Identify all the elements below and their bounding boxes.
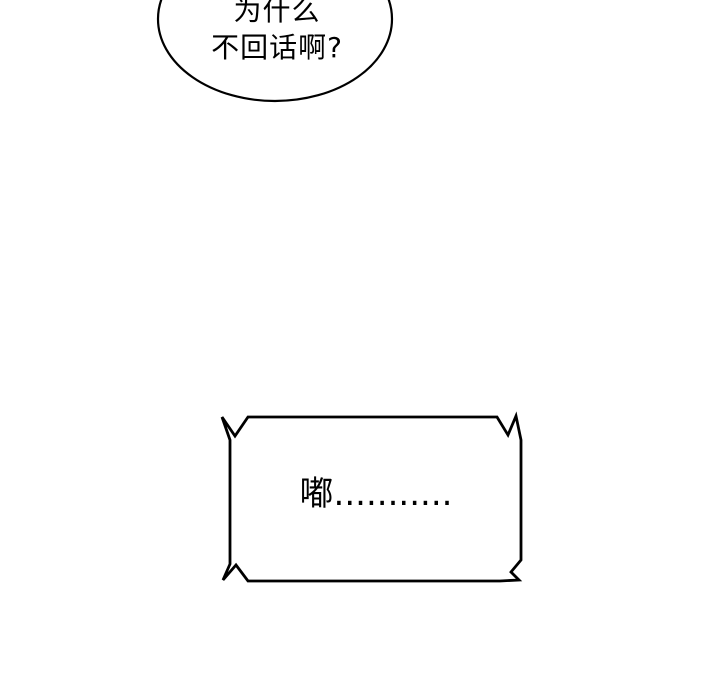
speech-bubble-line-1: 为什么	[187, 0, 367, 29]
bubble-shapes-layer	[0, 0, 720, 700]
speech-bubble-line-2: 不回话啊?	[187, 29, 367, 66]
speech-bubble-text: 为什么 不回话啊?	[187, 0, 367, 66]
sound-bubble-text: 嘟...........	[231, 474, 521, 514]
comic-panel: 为什么 不回话啊? 嘟...........	[0, 0, 720, 700]
